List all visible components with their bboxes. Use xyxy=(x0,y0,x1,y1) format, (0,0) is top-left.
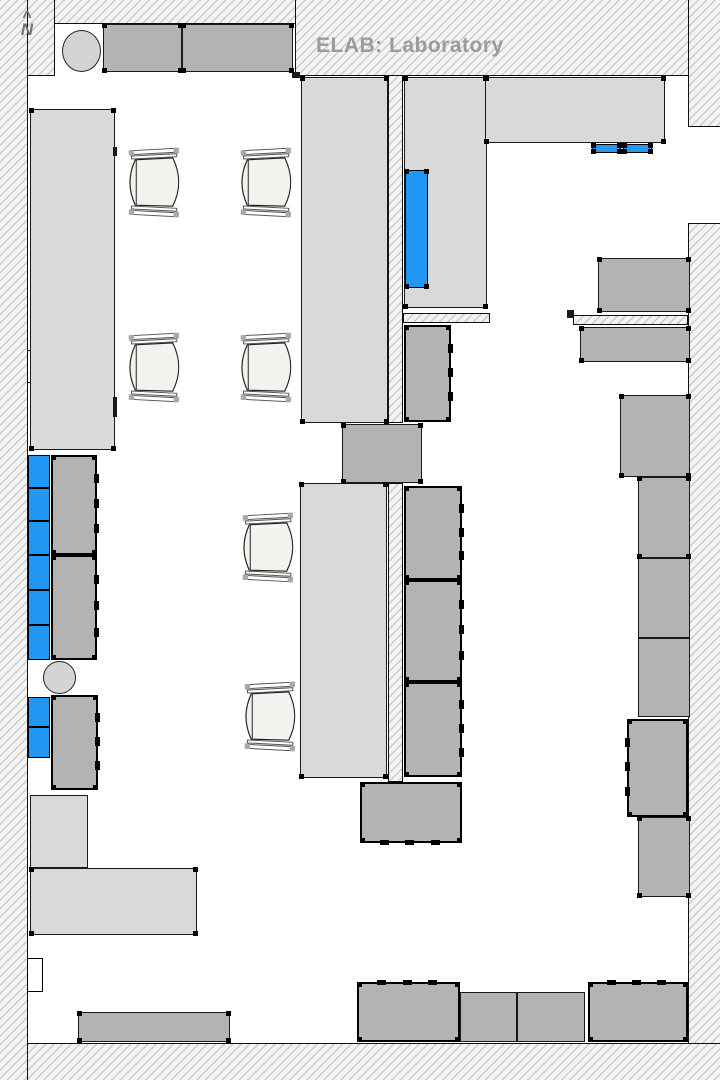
corner-dot xyxy=(404,284,409,289)
corner-dot xyxy=(686,257,691,262)
corner-dot xyxy=(93,785,98,790)
outlet-tick xyxy=(459,600,464,609)
corner-dot xyxy=(77,1038,82,1043)
corner-dot xyxy=(455,982,460,987)
corner-dot xyxy=(51,785,56,790)
corner-dot xyxy=(424,169,429,174)
corner-dot xyxy=(384,419,389,424)
chair-2 xyxy=(238,147,294,218)
corner-dot xyxy=(51,555,56,560)
corner-dot xyxy=(591,149,596,154)
corner-dot xyxy=(579,358,584,363)
corner-dot xyxy=(384,76,389,81)
alcove-counter-2 xyxy=(182,24,293,72)
bench-northeast-lower xyxy=(580,327,690,362)
outlet-tick xyxy=(95,737,100,746)
north-label: N xyxy=(15,24,39,37)
cabinet-east-4 xyxy=(638,638,690,717)
corner-dot xyxy=(299,774,304,779)
corner-dot xyxy=(193,867,198,872)
equipment-module-west-1 xyxy=(51,455,97,555)
wall-right xyxy=(688,223,720,1080)
inner-wall-horizontal-left xyxy=(403,313,490,323)
corner-dot xyxy=(404,325,409,330)
corner-dot xyxy=(111,108,116,113)
corner-dot xyxy=(383,774,388,779)
cabinet-east-6 xyxy=(638,817,690,897)
corner-dot xyxy=(637,816,642,821)
corner-dot xyxy=(300,419,305,424)
outlet-tick xyxy=(405,840,414,845)
corner-dot xyxy=(457,782,462,787)
counter-north-east xyxy=(485,77,665,143)
sink-circle-north xyxy=(62,30,101,72)
corner-dot xyxy=(51,455,56,460)
outlet-tick xyxy=(459,625,464,634)
corner-dot xyxy=(92,555,97,560)
wall-top-thin xyxy=(55,0,297,24)
corner-dot xyxy=(597,257,602,262)
highlighted-unit-west-3 xyxy=(28,521,50,555)
corner-dot xyxy=(661,139,666,144)
highlighted-unit-west-6 xyxy=(28,625,50,660)
corner-dot xyxy=(637,476,642,481)
corner-dot xyxy=(360,782,365,787)
corner-dot xyxy=(686,394,691,399)
outlet-tick xyxy=(94,499,99,508)
corner-dot xyxy=(597,308,602,313)
corner-dot xyxy=(457,772,462,777)
corner-dot xyxy=(403,304,408,309)
corner-dot xyxy=(418,423,423,428)
corner-dot xyxy=(404,169,409,174)
equipment-cabinet-east-5 xyxy=(627,719,688,817)
corner-dot xyxy=(51,695,56,700)
highlighted-unit-west-4 xyxy=(28,555,50,590)
corner-dot xyxy=(579,326,584,331)
outlet-tick xyxy=(95,761,100,770)
outlet-tick xyxy=(94,628,99,637)
corner-dot xyxy=(483,304,488,309)
corner-dot xyxy=(619,473,624,478)
corner-dot xyxy=(181,23,186,28)
corner-dot xyxy=(455,1037,460,1042)
equipment-module-center-3 xyxy=(404,682,462,777)
outlet-tick xyxy=(625,738,630,747)
outlet-tick xyxy=(94,575,99,584)
corner-dot xyxy=(226,1038,231,1043)
corner-dot xyxy=(360,838,365,843)
corner-dot xyxy=(686,308,691,313)
chair-3 xyxy=(126,332,182,403)
corner-dot xyxy=(93,695,98,700)
corner-dot xyxy=(404,580,409,585)
chair-6 xyxy=(242,681,298,752)
outlet-tick xyxy=(448,368,453,377)
storage-southwest-a xyxy=(30,795,88,868)
alcove-counter-1 xyxy=(103,24,182,72)
outlet-tick xyxy=(459,700,464,709)
highlighted-equipment-main xyxy=(405,170,428,288)
outlet-tick xyxy=(607,980,616,985)
corner-dot xyxy=(92,455,97,460)
corner-dot xyxy=(683,812,688,817)
corner-dot xyxy=(404,417,409,422)
outlet-tick xyxy=(94,474,99,483)
highlighted-equipment-ne-1 xyxy=(592,144,621,153)
corner-dot xyxy=(29,931,34,936)
corner-dot xyxy=(588,1037,593,1042)
equipment-module-center-4 xyxy=(360,782,462,843)
corner-dot xyxy=(686,326,691,331)
corner-dot xyxy=(683,719,688,724)
corner-dot xyxy=(424,284,429,289)
corner-dot xyxy=(299,482,304,487)
bench-south-west xyxy=(78,1012,230,1042)
corner-dot xyxy=(92,655,97,660)
corner-dot xyxy=(102,23,107,28)
bench-south-1 xyxy=(460,992,517,1042)
corner-dot xyxy=(404,486,409,491)
door-recess-lower-left xyxy=(27,958,43,992)
corner-dot xyxy=(193,931,198,936)
outlet-mark-counter-west-1 xyxy=(113,147,117,156)
corner-dot xyxy=(357,982,362,987)
outlet-tick xyxy=(94,524,99,533)
chair-4 xyxy=(238,332,294,403)
corner-dot xyxy=(622,143,627,148)
outlet-tick xyxy=(448,392,453,401)
floor-plan: ^ N ELAB: Laboratory xyxy=(0,0,720,1080)
outlet-mark-counter-west-2 xyxy=(113,397,117,417)
equipment-module-center-1 xyxy=(404,486,462,580)
chair-5 xyxy=(240,512,296,583)
wall-left xyxy=(0,0,28,1080)
plan-title: ELAB: Laboratory xyxy=(316,34,504,58)
corner-dot xyxy=(29,108,34,113)
outlet-tick xyxy=(380,840,389,845)
north-arrow: ^ N xyxy=(15,12,39,37)
corner-dot xyxy=(289,23,294,28)
table-north-center xyxy=(301,77,388,423)
corner-dot xyxy=(102,68,107,73)
corner-dot xyxy=(686,476,691,481)
outlet-tick xyxy=(657,980,666,985)
outlet-tick xyxy=(431,840,440,845)
outlet-tick xyxy=(459,528,464,537)
corner-dot xyxy=(300,76,305,81)
wall-bottom xyxy=(28,1043,720,1080)
counter-west xyxy=(30,109,115,450)
inner-wall-vertical-upper xyxy=(388,76,403,423)
corner-dot xyxy=(457,682,462,687)
cabinet-east-3 xyxy=(638,558,690,638)
corner-dot xyxy=(29,867,34,872)
corner-dot xyxy=(457,486,462,491)
highlighted-unit-west-8 xyxy=(28,727,50,758)
corner-dot xyxy=(627,812,632,817)
outlet-tick xyxy=(94,601,99,610)
storage-southwest-b xyxy=(30,868,197,935)
corner-dot xyxy=(686,358,691,363)
corner-dot xyxy=(289,68,294,73)
outlet-tick xyxy=(459,651,464,660)
corner-dot xyxy=(341,423,346,428)
cabinet-east-1 xyxy=(620,395,690,477)
outlet-tick xyxy=(95,713,100,722)
outlet-tick xyxy=(459,724,464,733)
corner-dot xyxy=(341,479,346,484)
corner-dot xyxy=(29,446,34,451)
equipment-bench-south-b xyxy=(588,982,688,1042)
highlighted-unit-west-7 xyxy=(28,697,50,727)
corner-dot xyxy=(637,554,642,559)
corner-dot xyxy=(403,76,408,81)
highlighted-unit-west-2 xyxy=(28,488,50,521)
corner-dot xyxy=(404,772,409,777)
corner-dot xyxy=(686,554,691,559)
equipment-bench-south-a xyxy=(357,982,460,1042)
bench-northeast-upper xyxy=(598,258,690,312)
equipment-module-west-2 xyxy=(51,555,97,660)
corner-dot xyxy=(686,893,691,898)
corner-dot xyxy=(446,417,451,422)
corner-dot xyxy=(77,1011,82,1016)
corner-dot xyxy=(622,149,627,154)
table-mid-center xyxy=(300,483,387,778)
inner-wall-vertical-lower xyxy=(388,483,403,782)
corner-dot xyxy=(51,655,56,660)
outlet-tick xyxy=(428,980,437,985)
equipment-module-north xyxy=(404,325,451,422)
outlet-tick xyxy=(403,980,412,985)
corner-dot xyxy=(627,719,632,724)
corner-dot xyxy=(591,143,596,148)
outlet-tick xyxy=(459,551,464,560)
corner-dot xyxy=(648,149,653,154)
corner-dot xyxy=(357,1037,362,1042)
highlighted-equipment-ne-2 xyxy=(623,144,652,153)
outlet-tick xyxy=(459,748,464,757)
corner-dot xyxy=(484,76,489,81)
corner-dot xyxy=(404,682,409,687)
bench-south-2 xyxy=(517,992,585,1042)
corner-dot xyxy=(383,482,388,487)
corner-dot xyxy=(181,68,186,73)
sink-circle-west xyxy=(43,661,76,694)
outlet-tick xyxy=(459,504,464,513)
corner-dot xyxy=(418,479,423,484)
outlet-tick xyxy=(377,980,386,985)
corner-dot xyxy=(683,1037,688,1042)
connector-block xyxy=(342,424,422,483)
outlet-tick xyxy=(625,762,630,771)
corner-dot xyxy=(683,982,688,987)
corner-dot xyxy=(648,143,653,148)
corner-dot xyxy=(446,325,451,330)
corner-dot xyxy=(484,139,489,144)
equipment-module-west-3 xyxy=(51,695,98,790)
corner-dot xyxy=(226,1011,231,1016)
inner-wall-horizontal-right xyxy=(573,315,688,325)
corner-dot xyxy=(619,394,624,399)
corner-dot xyxy=(457,838,462,843)
chair-1 xyxy=(126,147,182,218)
corner-dot xyxy=(637,893,642,898)
highlighted-unit-west-1 xyxy=(28,455,50,488)
wall-top-right xyxy=(688,0,720,127)
equipment-module-center-2 xyxy=(404,580,462,682)
corner-dot xyxy=(111,446,116,451)
highlighted-unit-west-5 xyxy=(28,590,50,625)
corner-dot xyxy=(661,76,666,81)
outlet-tick xyxy=(448,344,453,353)
cabinet-east-2 xyxy=(638,477,690,558)
corner-dot xyxy=(588,982,593,987)
outlet-tick xyxy=(632,980,641,985)
door-jamb-mark xyxy=(567,310,574,318)
outlet-tick xyxy=(625,787,630,796)
corner-dot xyxy=(457,580,462,585)
